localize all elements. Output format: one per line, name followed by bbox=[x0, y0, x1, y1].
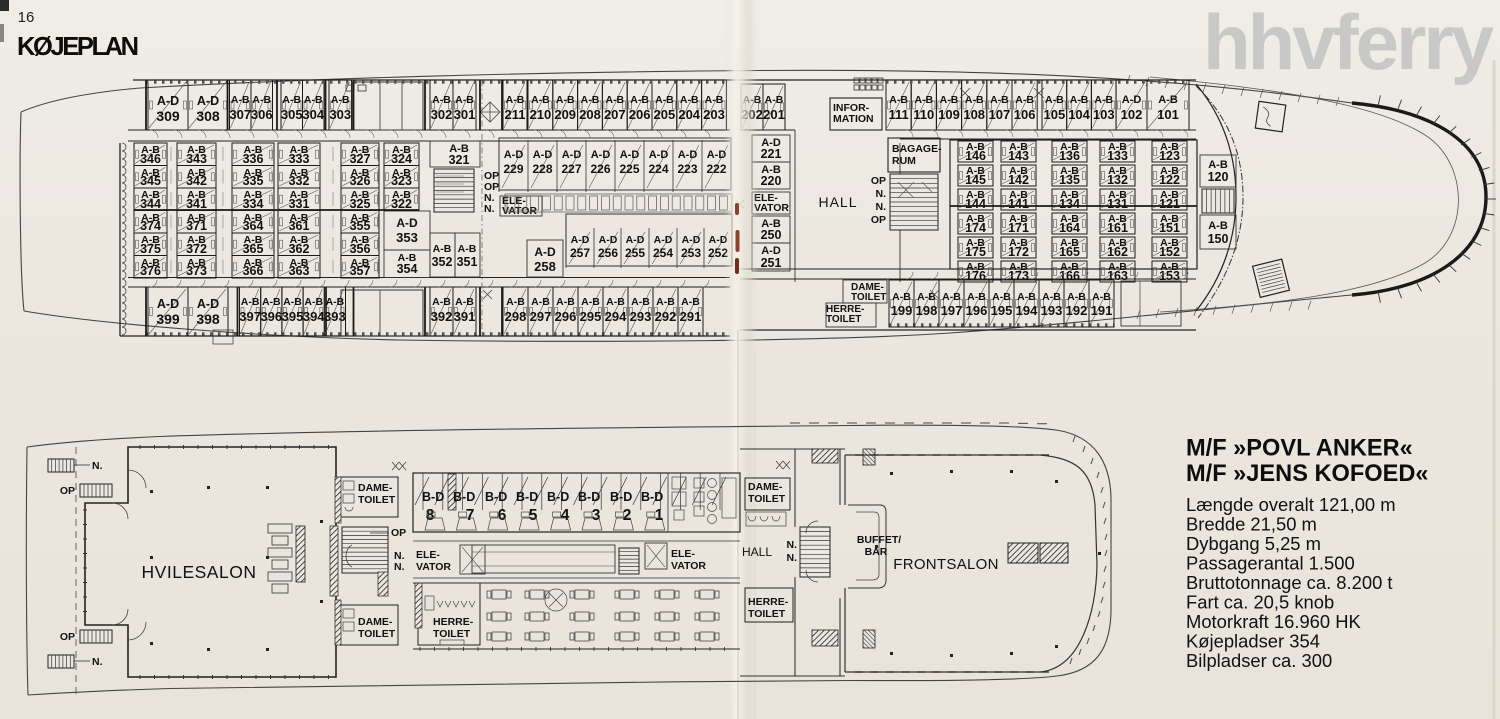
svg-text:B-D: B-D bbox=[547, 490, 569, 504]
svg-text:Dybgang 5,25 m: Dybgang 5,25 m bbox=[1186, 533, 1321, 554]
svg-text:A-D: A-D bbox=[654, 234, 673, 246]
svg-text:142: 142 bbox=[1008, 173, 1029, 187]
svg-text:110: 110 bbox=[913, 107, 934, 122]
svg-text:A-B: A-B bbox=[656, 296, 675, 308]
svg-text:A-B: A-B bbox=[940, 94, 959, 106]
svg-text:205: 205 bbox=[654, 107, 676, 122]
svg-text:2: 2 bbox=[623, 507, 632, 524]
svg-text:108: 108 bbox=[963, 107, 985, 122]
svg-text:A-D: A-D bbox=[1122, 94, 1142, 106]
svg-text:321: 321 bbox=[449, 153, 470, 167]
svg-text:121: 121 bbox=[1159, 197, 1180, 211]
svg-text:104: 104 bbox=[1068, 107, 1090, 122]
svg-text:144: 144 bbox=[965, 197, 986, 211]
svg-text:356: 356 bbox=[350, 242, 371, 256]
svg-text:211: 211 bbox=[505, 107, 526, 122]
svg-text:A-B: A-B bbox=[304, 94, 323, 106]
svg-text:A-B: A-B bbox=[765, 94, 784, 106]
svg-text:199: 199 bbox=[891, 303, 913, 318]
svg-text:N.: N. bbox=[92, 460, 103, 472]
svg-text:N.: N. bbox=[394, 561, 405, 573]
svg-text:394: 394 bbox=[303, 309, 325, 324]
svg-text:324: 324 bbox=[391, 152, 412, 166]
svg-text:N.: N. bbox=[92, 656, 103, 668]
svg-text:141: 141 bbox=[1008, 197, 1029, 211]
svg-text:392: 392 bbox=[431, 309, 453, 324]
svg-text:A-D: A-D bbox=[562, 149, 582, 161]
svg-text:395: 395 bbox=[282, 309, 304, 324]
svg-text:A-B: A-B bbox=[531, 94, 550, 106]
svg-text:352: 352 bbox=[432, 255, 453, 269]
svg-text:A-B: A-B bbox=[252, 94, 271, 106]
svg-text:361: 361 bbox=[289, 219, 310, 233]
svg-text:A-B: A-B bbox=[331, 94, 350, 106]
svg-text:195: 195 bbox=[991, 303, 1013, 318]
svg-text:VATOR: VATOR bbox=[416, 561, 451, 573]
svg-text:A-B: A-B bbox=[581, 94, 600, 106]
svg-text:298: 298 bbox=[505, 309, 527, 324]
svg-text:208: 208 bbox=[579, 107, 601, 122]
svg-text:257: 257 bbox=[570, 246, 590, 260]
svg-text:A-B: A-B bbox=[283, 296, 302, 308]
svg-text:302: 302 bbox=[431, 107, 453, 122]
svg-text:373: 373 bbox=[186, 264, 207, 278]
svg-text:OP: OP bbox=[391, 527, 406, 539]
svg-text:A-B: A-B bbox=[992, 291, 1011, 303]
svg-text:A-B: A-B bbox=[681, 296, 700, 308]
svg-text:366: 366 bbox=[243, 264, 264, 278]
svg-text:397: 397 bbox=[239, 309, 261, 324]
svg-text:B-D: B-D bbox=[485, 490, 507, 504]
svg-text:105: 105 bbox=[1043, 107, 1065, 122]
svg-text:362: 362 bbox=[289, 242, 310, 256]
svg-text:A-B: A-B bbox=[432, 94, 451, 106]
svg-text:152: 152 bbox=[1159, 245, 1180, 259]
svg-text:A-D: A-D bbox=[396, 216, 418, 230]
svg-text:A-B: A-B bbox=[556, 296, 575, 308]
svg-text:164: 164 bbox=[1059, 221, 1080, 235]
svg-text:326: 326 bbox=[350, 174, 371, 188]
svg-text:OP: OP bbox=[60, 485, 75, 497]
svg-text:A-B: A-B bbox=[326, 296, 345, 308]
svg-text:OP: OP bbox=[871, 214, 886, 226]
svg-text:BUFFET/: BUFFET/ bbox=[857, 534, 901, 546]
svg-text:133: 133 bbox=[1107, 149, 1128, 163]
svg-text:A-B: A-B bbox=[705, 94, 724, 106]
svg-text:365: 365 bbox=[243, 242, 264, 256]
svg-text:DAME-: DAME- bbox=[358, 616, 393, 628]
svg-text:B-D: B-D bbox=[516, 490, 538, 504]
svg-text:A-B: A-B bbox=[458, 243, 477, 255]
svg-text:VATOR: VATOR bbox=[671, 560, 706, 572]
svg-text:304: 304 bbox=[302, 107, 324, 122]
svg-text:341: 341 bbox=[186, 197, 207, 211]
svg-text:Motorkraft 16.960 HK: Motorkraft 16.960 HK bbox=[1186, 611, 1362, 632]
svg-text:194: 194 bbox=[1016, 303, 1038, 318]
svg-text:291: 291 bbox=[680, 309, 702, 324]
svg-text:198: 198 bbox=[916, 303, 938, 318]
svg-text:A-B: A-B bbox=[1094, 94, 1113, 106]
svg-text:301: 301 bbox=[454, 107, 476, 122]
svg-text:Fart ca. 20,5 knob: Fart ca. 20,5 knob bbox=[1186, 592, 1334, 613]
svg-text:143: 143 bbox=[1008, 149, 1029, 163]
svg-text:hhvferry: hhvferry bbox=[1203, 0, 1494, 86]
svg-text:165: 165 bbox=[1059, 245, 1080, 259]
svg-text:N.: N. bbox=[484, 203, 495, 215]
svg-text:351: 351 bbox=[457, 255, 478, 269]
svg-text:HERRE-: HERRE- bbox=[433, 616, 474, 628]
svg-text:226: 226 bbox=[590, 162, 610, 176]
svg-text:N.: N. bbox=[876, 201, 887, 213]
svg-text:A-D: A-D bbox=[504, 149, 524, 161]
svg-text:162: 162 bbox=[1107, 245, 1128, 259]
svg-text:296: 296 bbox=[555, 309, 577, 324]
svg-text:396: 396 bbox=[260, 309, 282, 324]
svg-text:B-D: B-D bbox=[610, 490, 632, 504]
svg-text:A-D: A-D bbox=[533, 149, 553, 161]
svg-text:A-B: A-B bbox=[1092, 291, 1111, 303]
svg-text:Bruttotonnage ca. 8.200 t: Bruttotonnage ca. 8.200 t bbox=[1186, 572, 1393, 593]
svg-text:A-B: A-B bbox=[581, 296, 600, 308]
svg-text:TOILET: TOILET bbox=[826, 314, 861, 325]
svg-text:A-B: A-B bbox=[231, 94, 250, 106]
svg-text:A-B: A-B bbox=[1067, 291, 1086, 303]
svg-text:251: 251 bbox=[761, 256, 782, 270]
svg-text:150: 150 bbox=[1208, 232, 1229, 246]
svg-text:308: 308 bbox=[196, 108, 220, 124]
svg-text:BAGAGE-: BAGAGE- bbox=[892, 143, 942, 155]
svg-text:A-B: A-B bbox=[1017, 291, 1036, 303]
svg-text:HALL: HALL bbox=[742, 545, 772, 559]
svg-text:258: 258 bbox=[534, 259, 556, 274]
svg-text:A-B: A-B bbox=[942, 291, 961, 303]
svg-text:254: 254 bbox=[653, 246, 673, 260]
svg-text:151: 151 bbox=[1159, 221, 1180, 235]
svg-text:A-B: A-B bbox=[889, 94, 908, 106]
svg-text:372: 372 bbox=[186, 242, 207, 256]
svg-text:334: 334 bbox=[243, 197, 264, 211]
svg-text:Køjepladser 354: Køjepladser 354 bbox=[1186, 631, 1320, 652]
svg-text:172: 172 bbox=[1008, 245, 1029, 259]
svg-text:A-B: A-B bbox=[1208, 220, 1228, 232]
svg-text:364: 364 bbox=[243, 219, 264, 233]
svg-text:A-B: A-B bbox=[680, 94, 699, 106]
svg-text:166: 166 bbox=[1059, 269, 1080, 283]
svg-text:A-B: A-B bbox=[630, 94, 649, 106]
svg-text:109: 109 bbox=[938, 107, 960, 122]
svg-text:A-B: A-B bbox=[304, 296, 323, 308]
svg-text:A-D: A-D bbox=[649, 149, 669, 161]
svg-text:220: 220 bbox=[761, 174, 782, 188]
svg-text:332: 332 bbox=[289, 174, 310, 188]
svg-text:309: 309 bbox=[156, 108, 180, 124]
svg-text:KØJEPLAN: KØJEPLAN bbox=[17, 33, 138, 61]
svg-text:TOILET: TOILET bbox=[358, 628, 396, 640]
svg-text:A-B: A-B bbox=[990, 94, 1009, 106]
svg-text:A-B: A-B bbox=[262, 296, 281, 308]
svg-text:A-B: A-B bbox=[631, 296, 650, 308]
svg-text:A-D: A-D bbox=[534, 245, 556, 259]
svg-text:376: 376 bbox=[140, 264, 161, 278]
svg-text:344: 344 bbox=[140, 197, 161, 211]
svg-text:A-D: A-D bbox=[682, 234, 701, 246]
svg-text:HALL: HALL bbox=[818, 194, 857, 210]
svg-text:203: 203 bbox=[703, 107, 725, 122]
svg-text:146: 146 bbox=[965, 149, 986, 163]
svg-text:RUM: RUM bbox=[892, 155, 916, 167]
svg-text:3: 3 bbox=[592, 507, 601, 524]
svg-text:391: 391 bbox=[454, 309, 476, 324]
svg-text:345: 345 bbox=[140, 174, 161, 188]
svg-text:A-D: A-D bbox=[197, 297, 219, 311]
svg-text:207: 207 bbox=[604, 107, 626, 122]
svg-text:HERRE-: HERRE- bbox=[748, 596, 789, 608]
svg-text:355: 355 bbox=[350, 219, 371, 233]
svg-text:297: 297 bbox=[530, 309, 552, 324]
svg-text:A-B: A-B bbox=[917, 291, 936, 303]
svg-text:A-D: A-D bbox=[157, 94, 179, 108]
svg-text:305: 305 bbox=[281, 107, 303, 122]
svg-text:B-D: B-D bbox=[422, 490, 444, 504]
svg-text:331: 331 bbox=[289, 197, 310, 211]
svg-text:A-B: A-B bbox=[556, 94, 575, 106]
svg-text:A-B: A-B bbox=[455, 296, 474, 308]
svg-text:A-B: A-B bbox=[506, 94, 525, 106]
svg-text:323: 323 bbox=[391, 174, 412, 188]
svg-text:225: 225 bbox=[619, 162, 639, 176]
svg-text:132: 132 bbox=[1107, 173, 1128, 187]
svg-text:ELE-: ELE- bbox=[671, 548, 695, 560]
svg-text:A-B: A-B bbox=[506, 296, 525, 308]
svg-text:222: 222 bbox=[706, 162, 726, 176]
svg-text:342: 342 bbox=[186, 174, 207, 188]
svg-text:327: 327 bbox=[350, 152, 371, 166]
svg-text:106: 106 bbox=[1014, 107, 1036, 122]
svg-text:306: 306 bbox=[251, 107, 273, 122]
svg-text:293: 293 bbox=[630, 309, 652, 324]
svg-text:A-B: A-B bbox=[432, 296, 451, 308]
svg-text:DAME-: DAME- bbox=[748, 481, 783, 493]
svg-text:Bredde 21,50 m: Bredde 21,50 m bbox=[1186, 514, 1317, 535]
svg-text:A-B: A-B bbox=[1158, 94, 1178, 106]
svg-text:A-B: A-B bbox=[241, 296, 260, 308]
svg-text:191: 191 bbox=[1091, 303, 1113, 318]
svg-text:196: 196 bbox=[966, 303, 988, 318]
svg-text:MATION: MATION bbox=[833, 113, 874, 125]
svg-text:B-D: B-D bbox=[641, 490, 663, 504]
svg-text:209: 209 bbox=[554, 107, 576, 122]
svg-text:197: 197 bbox=[941, 303, 963, 318]
svg-text:201: 201 bbox=[763, 107, 785, 122]
svg-text:B-D: B-D bbox=[578, 490, 600, 504]
svg-text:A-B: A-B bbox=[1070, 94, 1089, 106]
svg-text:363: 363 bbox=[289, 264, 310, 278]
svg-text:336: 336 bbox=[243, 152, 264, 166]
svg-text:TOILET: TOILET bbox=[748, 608, 786, 620]
svg-text:256: 256 bbox=[598, 246, 618, 260]
svg-text:5: 5 bbox=[529, 507, 538, 524]
svg-text:145: 145 bbox=[965, 173, 986, 187]
svg-text:TOILET: TOILET bbox=[433, 628, 471, 640]
svg-text:A-B: A-B bbox=[455, 94, 474, 106]
svg-text:ELE-: ELE- bbox=[416, 549, 440, 561]
svg-text:7: 7 bbox=[466, 507, 475, 524]
svg-text:131: 131 bbox=[1107, 197, 1128, 211]
svg-text:175: 175 bbox=[965, 245, 986, 259]
svg-text:101: 101 bbox=[1157, 107, 1179, 122]
svg-text:204: 204 bbox=[678, 107, 700, 122]
svg-text:N.: N. bbox=[787, 539, 798, 551]
svg-text:A-B: A-B bbox=[1015, 94, 1034, 106]
svg-text:DAME-: DAME- bbox=[358, 482, 393, 494]
svg-text:229: 229 bbox=[503, 162, 523, 176]
svg-text:224: 224 bbox=[648, 162, 668, 176]
svg-text:173: 173 bbox=[1008, 269, 1029, 283]
svg-text:295: 295 bbox=[580, 309, 602, 324]
svg-text:399: 399 bbox=[156, 311, 180, 327]
svg-text:374: 374 bbox=[140, 219, 161, 233]
svg-text:A-B: A-B bbox=[967, 291, 986, 303]
svg-text:354: 354 bbox=[397, 262, 418, 276]
svg-text:111: 111 bbox=[888, 107, 908, 122]
svg-text:A-D: A-D bbox=[626, 234, 645, 246]
svg-text:107: 107 bbox=[989, 107, 1011, 122]
svg-text:N.: N. bbox=[787, 552, 798, 564]
svg-text:B-D: B-D bbox=[453, 490, 475, 504]
svg-text:103: 103 bbox=[1093, 107, 1115, 122]
svg-text:343: 343 bbox=[186, 152, 207, 166]
svg-text:Passagerantal 1.500: Passagerantal 1.500 bbox=[1186, 553, 1355, 574]
svg-text:123: 123 bbox=[1159, 149, 1180, 163]
svg-text:A-B: A-B bbox=[655, 94, 674, 106]
svg-text:375: 375 bbox=[140, 242, 161, 256]
svg-text:A-B: A-B bbox=[433, 243, 452, 255]
svg-text:A-D: A-D bbox=[707, 149, 727, 161]
svg-text:357: 357 bbox=[350, 264, 371, 278]
svg-text:A-D: A-D bbox=[599, 234, 618, 246]
svg-text:102: 102 bbox=[1121, 107, 1143, 122]
svg-text:A-B: A-B bbox=[892, 291, 911, 303]
svg-text:171: 171 bbox=[1008, 221, 1029, 235]
svg-text:250: 250 bbox=[761, 228, 782, 242]
svg-text:134: 134 bbox=[1059, 197, 1080, 211]
svg-text:A-B: A-B bbox=[282, 94, 301, 106]
svg-text:N.: N. bbox=[876, 188, 887, 200]
svg-text:292: 292 bbox=[655, 309, 677, 324]
svg-text:120: 120 bbox=[1208, 170, 1229, 184]
svg-text:346: 346 bbox=[140, 152, 161, 166]
svg-text:TOILET: TOILET bbox=[358, 494, 396, 506]
svg-text:228: 228 bbox=[532, 162, 552, 176]
svg-text:206: 206 bbox=[629, 107, 651, 122]
svg-text:OP: OP bbox=[60, 631, 75, 643]
svg-text:210: 210 bbox=[530, 107, 552, 122]
svg-text:333: 333 bbox=[289, 152, 310, 166]
svg-text:A-B: A-B bbox=[531, 296, 550, 308]
svg-text:122: 122 bbox=[1159, 173, 1180, 187]
svg-text:253: 253 bbox=[681, 246, 701, 260]
svg-text:303: 303 bbox=[329, 107, 351, 122]
svg-text:A-D: A-D bbox=[197, 94, 219, 108]
svg-text:A-B: A-B bbox=[605, 94, 624, 106]
svg-text:192: 192 bbox=[1066, 303, 1088, 318]
svg-text:OP: OP bbox=[871, 175, 886, 187]
svg-text:325: 325 bbox=[350, 197, 371, 211]
svg-text:322: 322 bbox=[391, 197, 412, 211]
svg-text:A-D: A-D bbox=[571, 234, 590, 246]
svg-text:Bilpladser ca. 300: Bilpladser ca. 300 bbox=[1186, 650, 1332, 671]
svg-text:A-D: A-D bbox=[157, 297, 179, 311]
svg-text:353: 353 bbox=[396, 230, 418, 245]
svg-text:307: 307 bbox=[229, 107, 251, 122]
svg-text:371: 371 bbox=[186, 219, 207, 233]
svg-text:A-B: A-B bbox=[1045, 94, 1064, 106]
svg-text:HVILESALON: HVILESALON bbox=[142, 562, 257, 582]
svg-text:A-B: A-B bbox=[606, 296, 625, 308]
svg-text:TOILET: TOILET bbox=[748, 493, 786, 505]
svg-text:193: 193 bbox=[1041, 303, 1063, 318]
svg-text:A-B: A-B bbox=[914, 94, 933, 106]
svg-text:A-D: A-D bbox=[591, 149, 611, 161]
svg-text:TOILET: TOILET bbox=[851, 292, 886, 303]
svg-text:FRONTSALON: FRONTSALON bbox=[893, 556, 999, 573]
svg-text:136: 136 bbox=[1059, 149, 1080, 163]
svg-text:335: 335 bbox=[243, 174, 264, 188]
svg-text:M/F »POVL ANKER«: M/F »POVL ANKER« bbox=[1186, 436, 1413, 462]
svg-text:176: 176 bbox=[965, 269, 986, 283]
svg-text:M/F »JENS KOFOED«: M/F »JENS KOFOED« bbox=[1186, 461, 1429, 487]
svg-text:227: 227 bbox=[561, 162, 581, 176]
svg-text:161: 161 bbox=[1107, 221, 1128, 235]
svg-text:221: 221 bbox=[761, 147, 782, 161]
svg-text:Længde overalt 121,00 m: Længde overalt 121,00 m bbox=[1186, 494, 1396, 515]
svg-text:A-D: A-D bbox=[678, 149, 698, 161]
svg-text:A-D: A-D bbox=[620, 149, 640, 161]
svg-text:294: 294 bbox=[605, 309, 627, 324]
svg-text:223: 223 bbox=[677, 162, 697, 176]
svg-text:A-B: A-B bbox=[1042, 291, 1061, 303]
svg-text:VATOR: VATOR bbox=[754, 202, 789, 214]
svg-text:398: 398 bbox=[196, 311, 220, 327]
svg-text:16: 16 bbox=[18, 9, 35, 26]
svg-text:393: 393 bbox=[324, 309, 346, 324]
svg-text:174: 174 bbox=[965, 221, 986, 235]
svg-text:255: 255 bbox=[625, 246, 645, 260]
svg-text:135: 135 bbox=[1059, 173, 1080, 187]
